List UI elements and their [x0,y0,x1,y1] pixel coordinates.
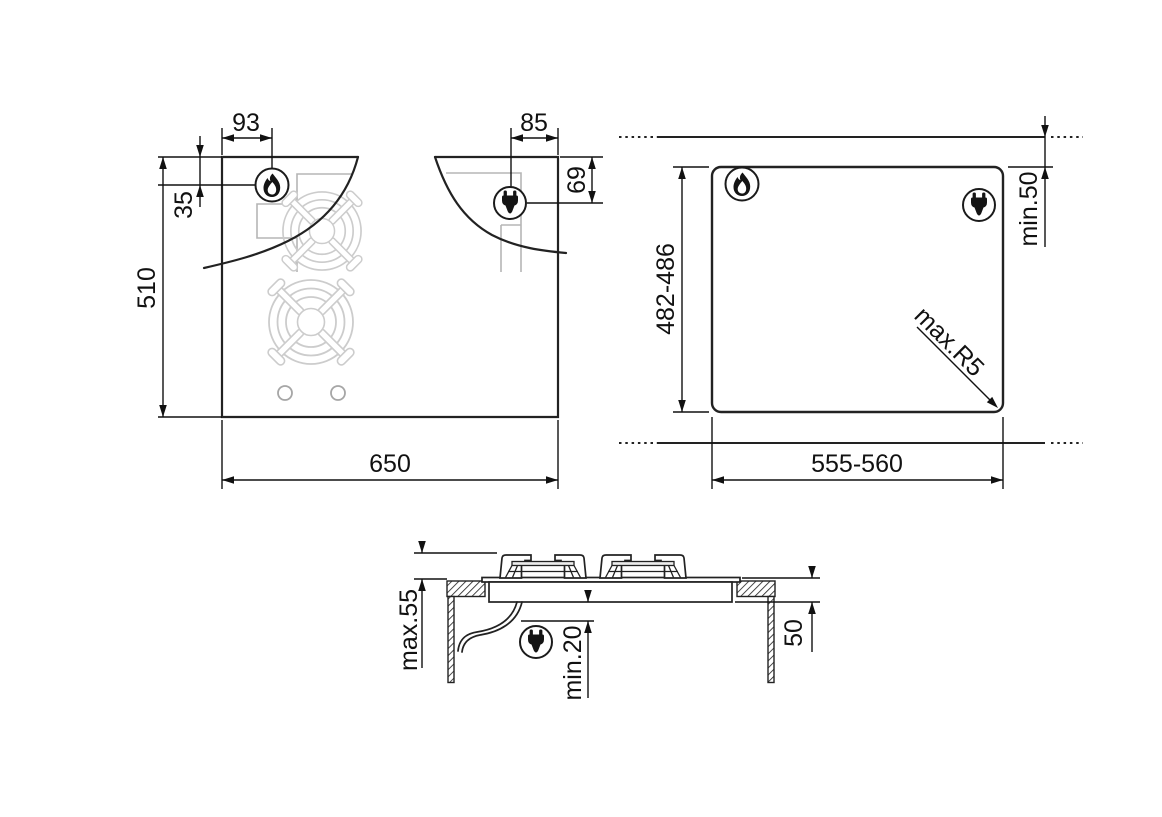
label-min50: min.50 [1015,171,1043,246]
label-35: 35 [170,191,198,219]
pan-support-rear [281,190,364,273]
label-85: 85 [520,109,548,137]
dimension-482-486: 482-486 [652,167,709,412]
label-482-486: 482-486 [652,243,680,335]
hob-body [489,582,732,602]
knob-right [331,386,345,400]
dimension-max55: max.55 [395,541,497,671]
worktop-section-right [737,581,775,597]
power-plug-icon [963,189,995,221]
installation-drawing-page: 93 85 35 510 [0,0,1162,817]
worktop-section-left [447,581,485,597]
cutout-view: 482-486 min.50 max.R5 555-560 [619,116,1083,489]
gas-flame-icon [726,168,759,201]
label-69: 69 [563,166,591,194]
top-view: 93 85 35 510 [133,109,603,489]
dimension-min50: min.50 [1008,116,1053,247]
power-cable [458,602,522,652]
dimension-650: 650 [222,420,558,489]
cabinet-side-right [768,597,774,683]
dimension-50: 50 [735,566,820,652]
label-510: 510 [133,267,161,309]
label-max55: max.55 [395,589,423,671]
power-plug-icon [520,626,552,658]
power-plug-icon [494,187,526,219]
cutout-rectangle [712,167,1003,412]
dimension-85: 85 [511,109,558,201]
pan-support-front [266,277,355,366]
burner-profile-right [600,555,686,578]
burner-profile-left [500,555,586,578]
knob-left [278,386,292,400]
label-50: 50 [780,619,808,647]
dimension-69: 69 [527,157,603,203]
gas-flame-icon [256,169,289,202]
side-view: max.55 50 min.20 [395,541,820,701]
label-93: 93 [232,109,260,137]
hob-installation-drawing: 93 85 35 510 [0,0,1162,817]
cabinet-side-left [448,597,454,683]
label-min20: min.20 [559,625,587,700]
label-650: 650 [369,450,411,478]
label-555-560: 555-560 [811,450,903,478]
dimension-35: 35 [158,136,257,219]
dimension-555-560: 555-560 [712,417,1003,489]
